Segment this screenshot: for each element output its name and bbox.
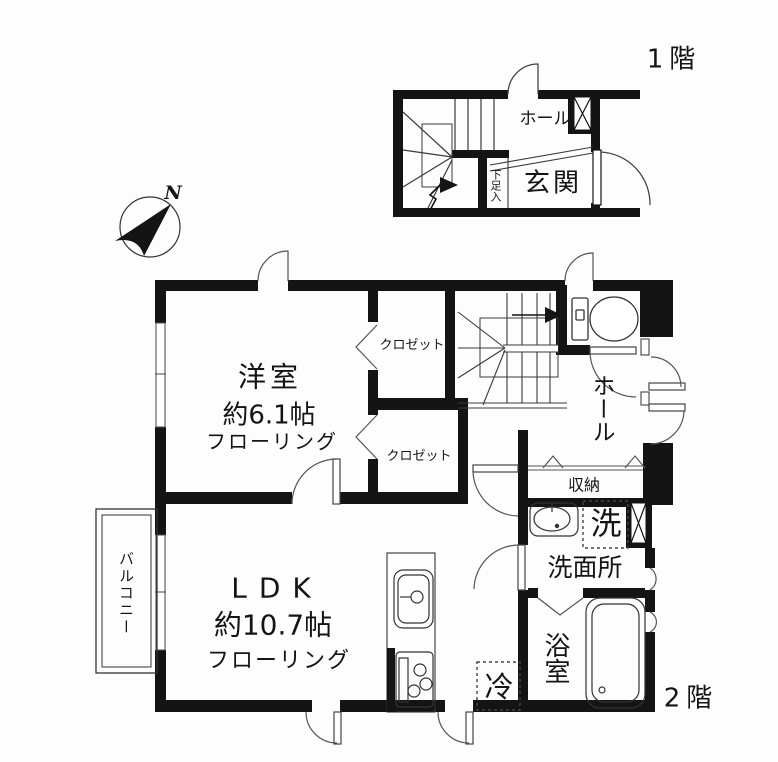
- floor1-pipe-shaft: [568, 92, 598, 134]
- bedroom-name-label: 洋室: [238, 362, 302, 391]
- floor2-right-wall-frames: [641, 339, 649, 405]
- floor2-label: 2階: [664, 685, 719, 712]
- floor1-hall-door-arc: [508, 64, 538, 94]
- kitchen-sink-icon: [394, 570, 433, 628]
- balcony-label: バルコニー: [118, 518, 133, 668]
- washing-machine-label: 洗: [591, 509, 622, 542]
- floor2-pipe-shaft: [626, 498, 652, 548]
- compass-north-label: N: [164, 184, 181, 204]
- ldk-size-label: 約10.7帖: [214, 610, 332, 639]
- washroom-sink-icon: [530, 503, 578, 536]
- refrigerator-label: 冷: [484, 672, 513, 702]
- ldk-name-label: LDK: [231, 573, 323, 602]
- bathtub-icon: [586, 598, 645, 708]
- compass-icon: [115, 197, 180, 257]
- storage-label: 収納: [568, 478, 600, 495]
- washroom-label: 洗面所: [547, 555, 622, 581]
- bathroom-label: 浴室: [542, 620, 568, 695]
- shoe-cabinet-label: 下足入: [490, 156, 501, 214]
- entrance-hall-label: ホール: [520, 111, 571, 129]
- floorplan-drawing: [0, 0, 778, 762]
- closet-lower-label: クロゼット: [386, 450, 451, 464]
- ldk-flooring-label: フローリング: [207, 649, 351, 672]
- bedroom-flooring-label: フローリング: [206, 432, 338, 453]
- toilet-icon: [572, 297, 638, 341]
- bedroom-window: [155, 323, 166, 427]
- floor1-label: 1階: [647, 46, 702, 73]
- floorplan-canvas: 1階 ホール 玄関 下足入 N 洋室 約6.1帖 フローリング クロゼット クロ…: [0, 0, 778, 762]
- entrance-label: 玄関: [524, 170, 582, 197]
- hall-label: ホール: [589, 358, 612, 458]
- stove-icon: [396, 652, 433, 707]
- closet-upper-label: クロゼット: [379, 339, 444, 353]
- floor1-entrance-door: [593, 150, 650, 205]
- bedroom-size-label: 約6.1帖: [222, 402, 315, 429]
